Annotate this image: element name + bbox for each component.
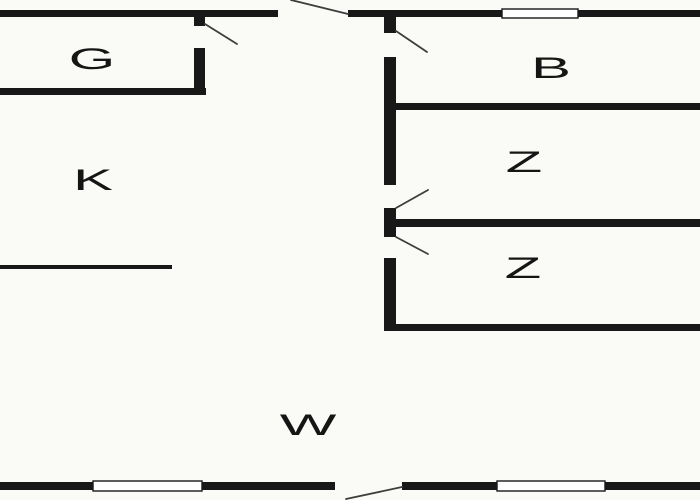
g-room-bottom-wall [0,88,206,95]
z1-room-door-swing [396,190,428,208]
bottom-wall-far-left [0,482,93,490]
g-room-right-wall [194,48,205,95]
b-room-bottom-wall [390,103,700,110]
room-label-b: B [531,51,571,85]
window-bottom-right [497,481,605,491]
hall-wall-stub [384,17,396,33]
bottom-wall-center-left [202,482,335,490]
room-label-g: G [69,42,116,76]
g-room-door-swing [205,24,237,44]
hall-wall-upper [384,57,396,185]
top-wall-middle [348,10,502,17]
top-wall-left [0,10,278,17]
k-room-counter-line [0,265,172,269]
w-room-door-swing [346,487,402,499]
floor-plan: GKBZZW [0,0,700,500]
bottom-wall-far-right [605,482,700,490]
bottom-wall-center-right [402,482,497,490]
z2-room-door-swing [396,237,428,254]
b-room-door-swing [396,31,427,52]
window-bottom-left [93,481,202,491]
hall-wall-lower [384,258,396,330]
room-label-z1: Z [506,145,543,179]
room-label-z2: Z [505,251,542,285]
z2-room-bottom-wall [384,324,700,331]
room-label-k: K [73,163,113,197]
g-room-right-wall-stub [194,17,205,26]
z1-room-bottom-wall [390,219,700,227]
floor-plan-drawing: GKBZZW [0,0,700,500]
window-top [502,9,578,18]
room-label-w: W [280,408,337,442]
top-wall-right [578,10,700,17]
entrance-door-swing [291,0,348,14]
